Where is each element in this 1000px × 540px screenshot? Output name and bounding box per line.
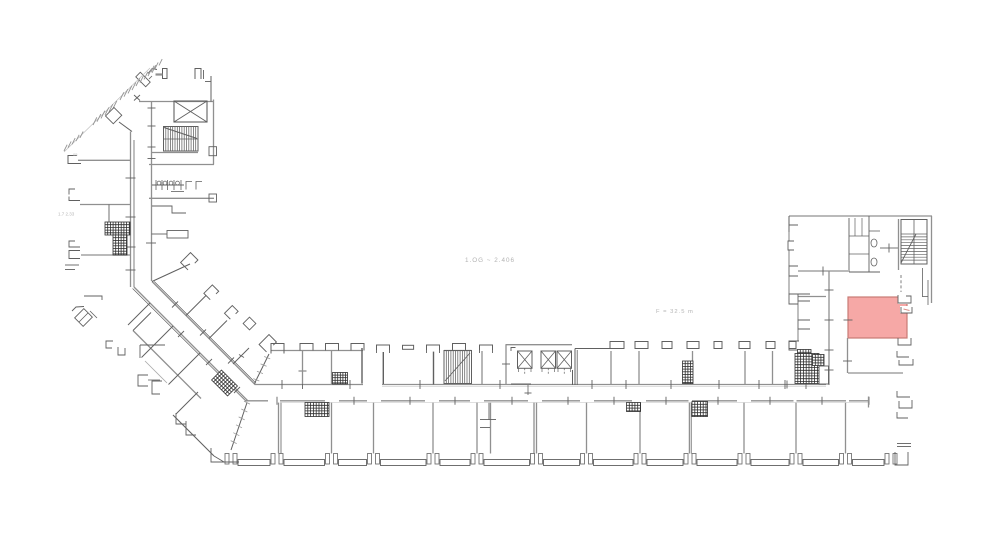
svg-text:05: 05 [73,152,78,157]
svg-text:F = 32.5 m: F = 32.5 m [656,309,694,315]
svg-text:1.OG ~ 2.406: 1.OG ~ 2.406 [465,257,515,264]
svg-text:1.7 2.33: 1.7 2.33 [58,212,75,217]
